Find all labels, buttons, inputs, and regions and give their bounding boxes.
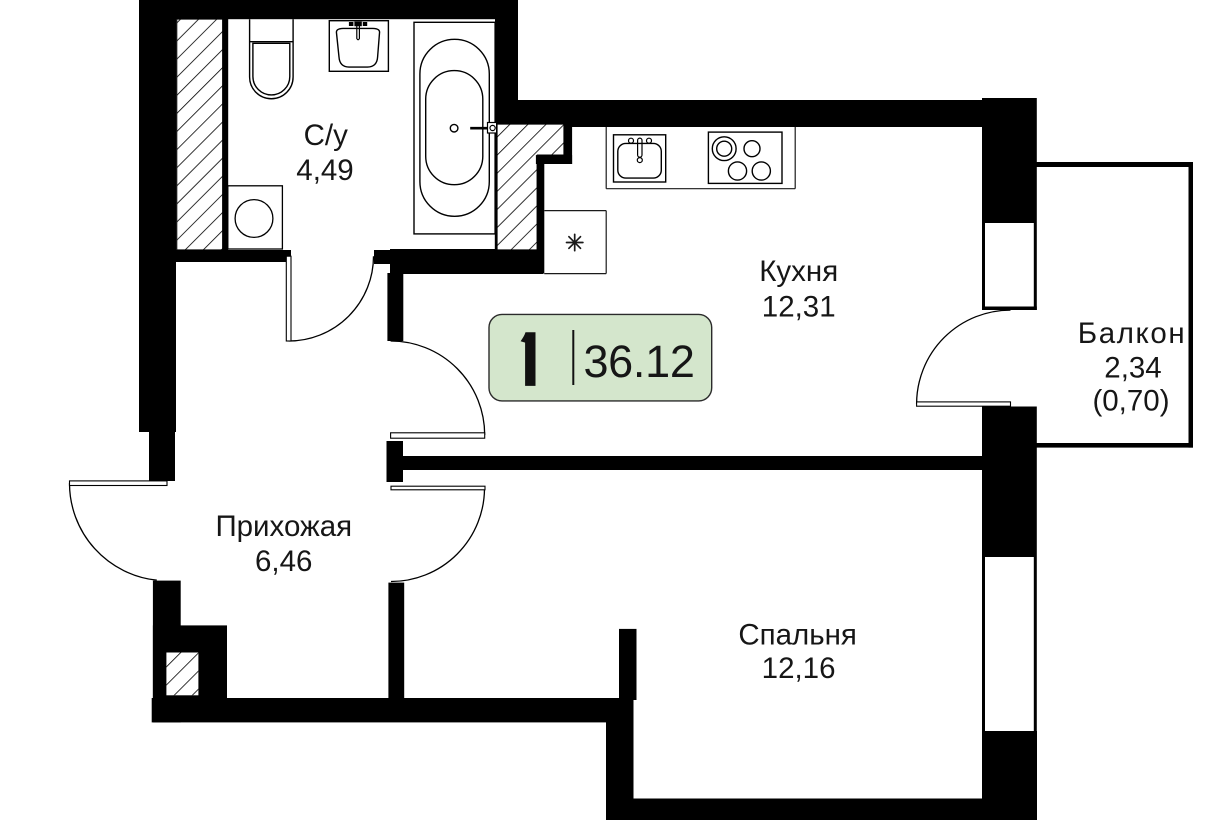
svg-text:2,34: 2,34	[1104, 352, 1161, 385]
svg-text:Спальня: Спальня	[738, 619, 857, 652]
svg-text:12,16: 12,16	[762, 652, 836, 685]
svg-text:Кухня: Кухня	[759, 255, 838, 288]
svg-text:12,31: 12,31	[762, 291, 836, 324]
svg-text:36.12: 36.12	[583, 336, 694, 387]
svg-text:(0,70): (0,70)	[1092, 385, 1169, 418]
svg-text:Балкон: Балкон	[1078, 317, 1187, 350]
svg-text:4,49: 4,49	[296, 154, 353, 187]
svg-text:Прихожая: Прихожая	[215, 510, 352, 543]
svg-text:6,46: 6,46	[255, 545, 312, 578]
svg-text:С/у: С/у	[304, 119, 349, 152]
